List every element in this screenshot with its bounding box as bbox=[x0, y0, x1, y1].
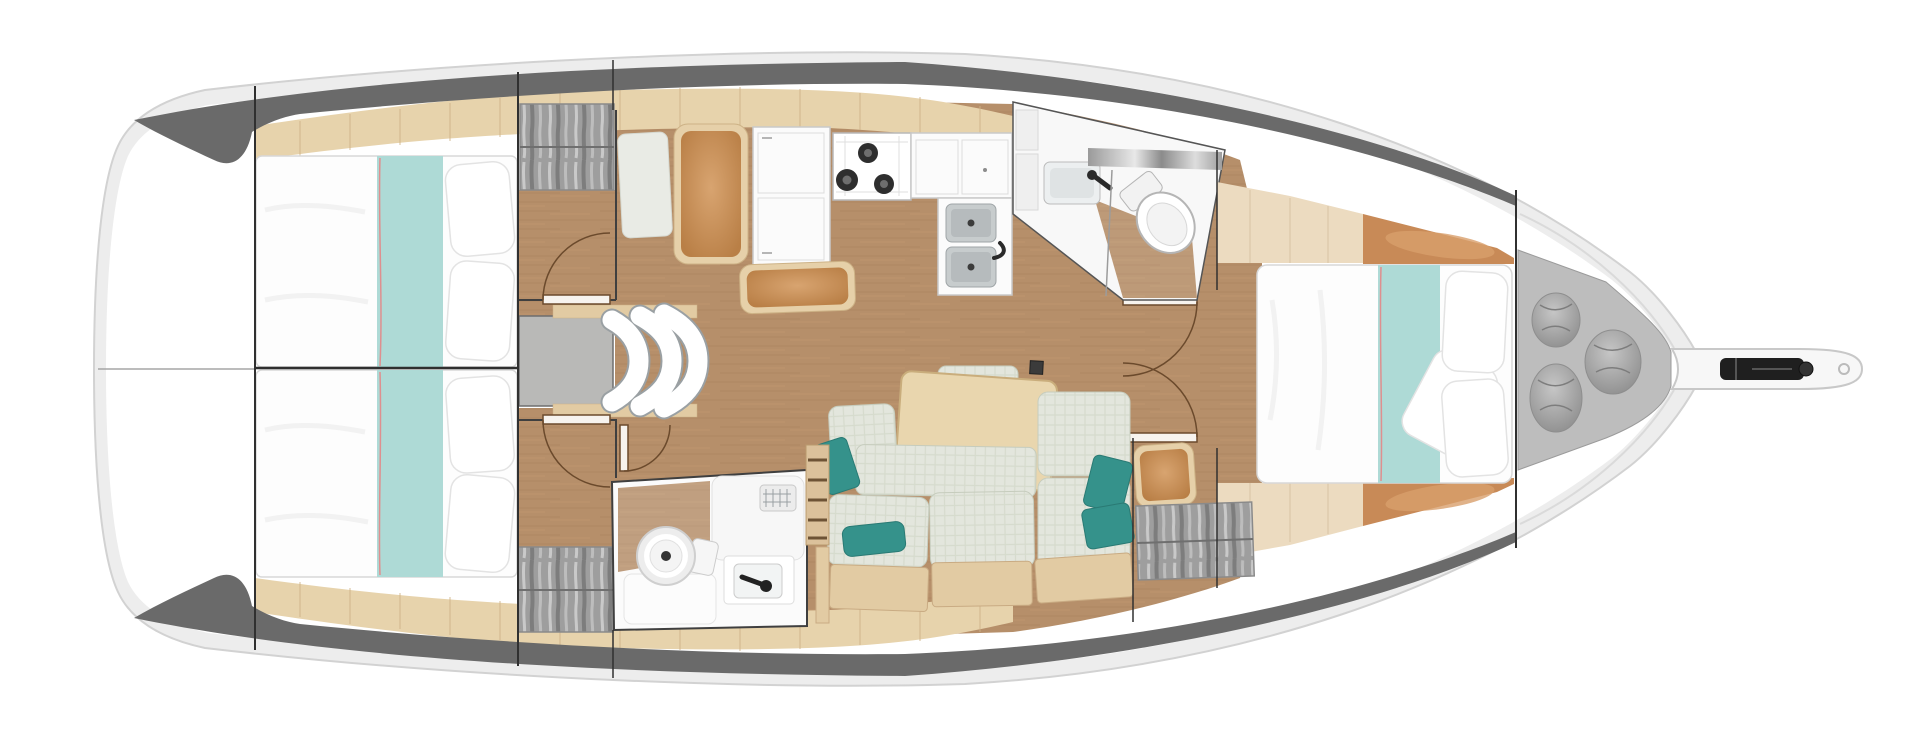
aft-cabin-starboard-entry-floor bbox=[518, 408, 615, 548]
aft-cabin-port bbox=[256, 156, 517, 367]
shelf bbox=[1016, 154, 1038, 210]
storage-bag bbox=[1530, 364, 1582, 432]
floorplan-canvas bbox=[0, 0, 1920, 739]
boat-floorplan bbox=[0, 0, 1920, 739]
galley-bench bbox=[739, 261, 856, 314]
hanging-locker-aft-top bbox=[520, 104, 614, 190]
forward-bench bbox=[1133, 442, 1197, 508]
hanging-locker-forward bbox=[1136, 502, 1255, 580]
refrigerator bbox=[753, 127, 830, 267]
shower-tray bbox=[712, 476, 804, 560]
pillow bbox=[444, 160, 516, 257]
pillow bbox=[444, 473, 516, 573]
washbasin bbox=[724, 556, 794, 604]
aft-cabin-starboard bbox=[256, 370, 517, 577]
runner bbox=[377, 156, 443, 367]
pillow bbox=[445, 375, 515, 474]
settee-cushion bbox=[929, 491, 1034, 569]
settee-base-panel bbox=[1035, 553, 1134, 604]
pillow bbox=[1441, 270, 1508, 373]
storage-bag bbox=[1532, 293, 1580, 347]
double-sink bbox=[938, 198, 1012, 295]
anchor-roller bbox=[1720, 358, 1813, 380]
pillow bbox=[1441, 378, 1510, 478]
shelf bbox=[1016, 110, 1038, 150]
galley-counter bbox=[911, 133, 1012, 198]
island-berth bbox=[1257, 265, 1512, 483]
settee-back-cushion bbox=[617, 132, 672, 238]
settee-back-row bbox=[856, 444, 1037, 497]
hanging-locker-aft-bottom bbox=[518, 547, 613, 632]
settee-base-panel bbox=[829, 564, 928, 611]
settee-base-panel bbox=[932, 561, 1033, 607]
storage-bag bbox=[1585, 330, 1641, 394]
mast-foot bbox=[1030, 361, 1044, 375]
washbasin bbox=[1044, 162, 1110, 204]
companionway bbox=[519, 305, 698, 417]
engine-box-platform bbox=[519, 316, 613, 406]
pillow bbox=[445, 260, 516, 362]
stove-three-burner bbox=[833, 133, 911, 200]
nav-seat bbox=[674, 124, 748, 264]
runner bbox=[377, 370, 443, 577]
